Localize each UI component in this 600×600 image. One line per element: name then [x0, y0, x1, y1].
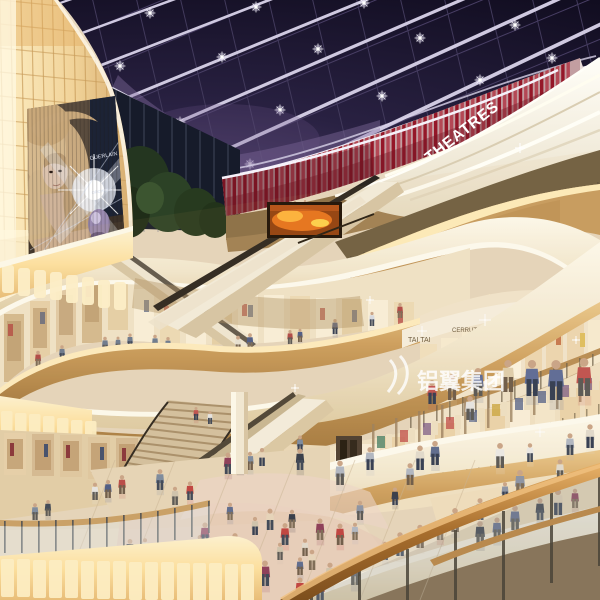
svg-text:铝翼集团: 铝翼集团 [417, 369, 505, 394]
